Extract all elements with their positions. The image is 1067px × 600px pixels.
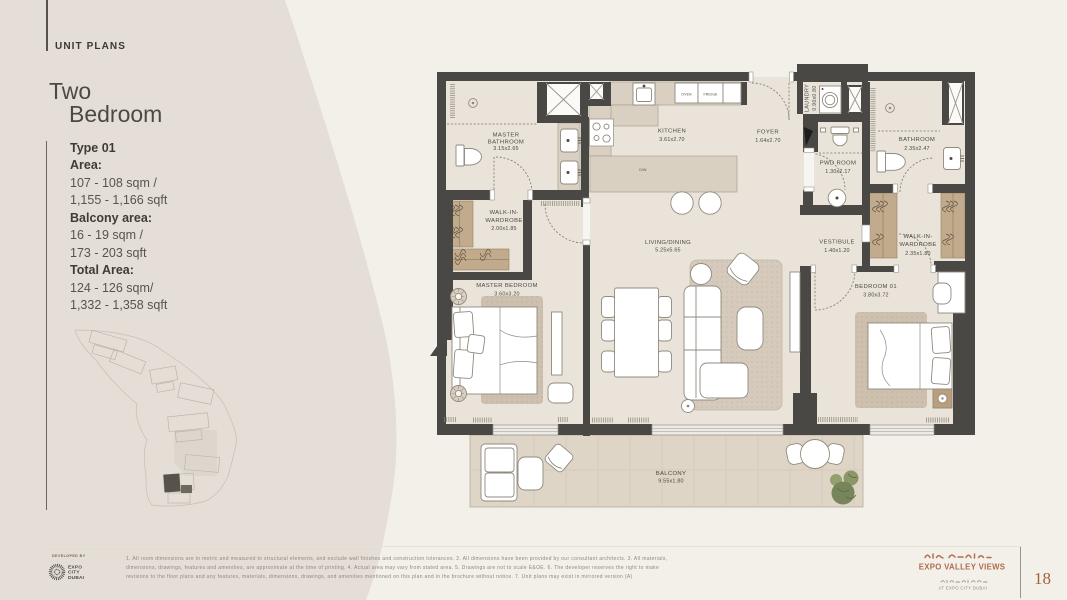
svg-text:BALCONY: BALCONY (656, 471, 687, 477)
svg-text:D/W: D/W (639, 168, 647, 172)
svg-text:3.60x3.20: 3.60x3.20 (494, 292, 519, 298)
svg-text:AT EXPO CITY DUBAI: AT EXPO CITY DUBAI (939, 586, 988, 591)
svg-text:DUBAI: DUBAI (68, 575, 85, 581)
svg-text:2.00x1.85: 2.00x1.85 (491, 226, 516, 232)
svg-text:9.55x1.80: 9.55x1.80 (658, 479, 683, 485)
svg-text:2.35x1.80: 2.35x1.80 (905, 251, 930, 257)
svg-text:CITY: CITY (68, 570, 80, 576)
svg-text:FRIDGE: FRIDGE (703, 93, 718, 97)
svg-text:LIVING/DINING: LIVING/DINING (645, 240, 691, 246)
svg-text:EXPO VALLEY VIEWS: EXPO VALLEY VIEWS (919, 563, 1006, 572)
svg-text:1.64x2.70: 1.64x2.70 (755, 138, 780, 144)
svg-text:3.61x2.70: 3.61x2.70 (659, 137, 684, 143)
svg-text:BATHROOM: BATHROOM (899, 137, 935, 143)
svg-text:WARDROBE: WARDROBE (899, 242, 936, 248)
svg-text:VESTIBULE: VESTIBULE (819, 240, 855, 246)
svg-text:MASTER: MASTER (493, 133, 520, 139)
svg-text:EXPO: EXPO (68, 564, 82, 570)
svg-text:3.80x3.72: 3.80x3.72 (863, 293, 888, 299)
svg-text:WARDROBE: WARDROBE (485, 218, 522, 224)
svg-text:2.35x2.47: 2.35x2.47 (904, 146, 929, 152)
svg-text:BEDROOM 01: BEDROOM 01 (855, 284, 897, 290)
svg-text:WALK-IN-: WALK-IN- (489, 210, 518, 216)
svg-text:BATHROOM: BATHROOM (488, 140, 524, 146)
svg-text:WALK-IN-: WALK-IN- (903, 234, 932, 240)
svg-text:LAUNDRY: LAUNDRY (805, 84, 811, 112)
svg-text:MASTER BEDROOM: MASTER BEDROOM (476, 283, 538, 289)
svg-text:1.30x2.17: 1.30x2.17 (825, 169, 850, 175)
svg-text:OVEN: OVEN (681, 93, 692, 97)
svg-text:FOYER: FOYER (757, 130, 779, 136)
svg-text:0.90x0.80: 0.90x0.80 (812, 85, 818, 110)
svg-text:PWD ROOM: PWD ROOM (820, 161, 857, 167)
svg-text:3.15x2.65: 3.15x2.65 (493, 146, 518, 152)
svg-text:5.25x5.65: 5.25x5.65 (655, 248, 680, 254)
svg-text:1.40x1.20: 1.40x1.20 (824, 248, 849, 254)
svg-text:KITCHEN: KITCHEN (658, 129, 686, 135)
